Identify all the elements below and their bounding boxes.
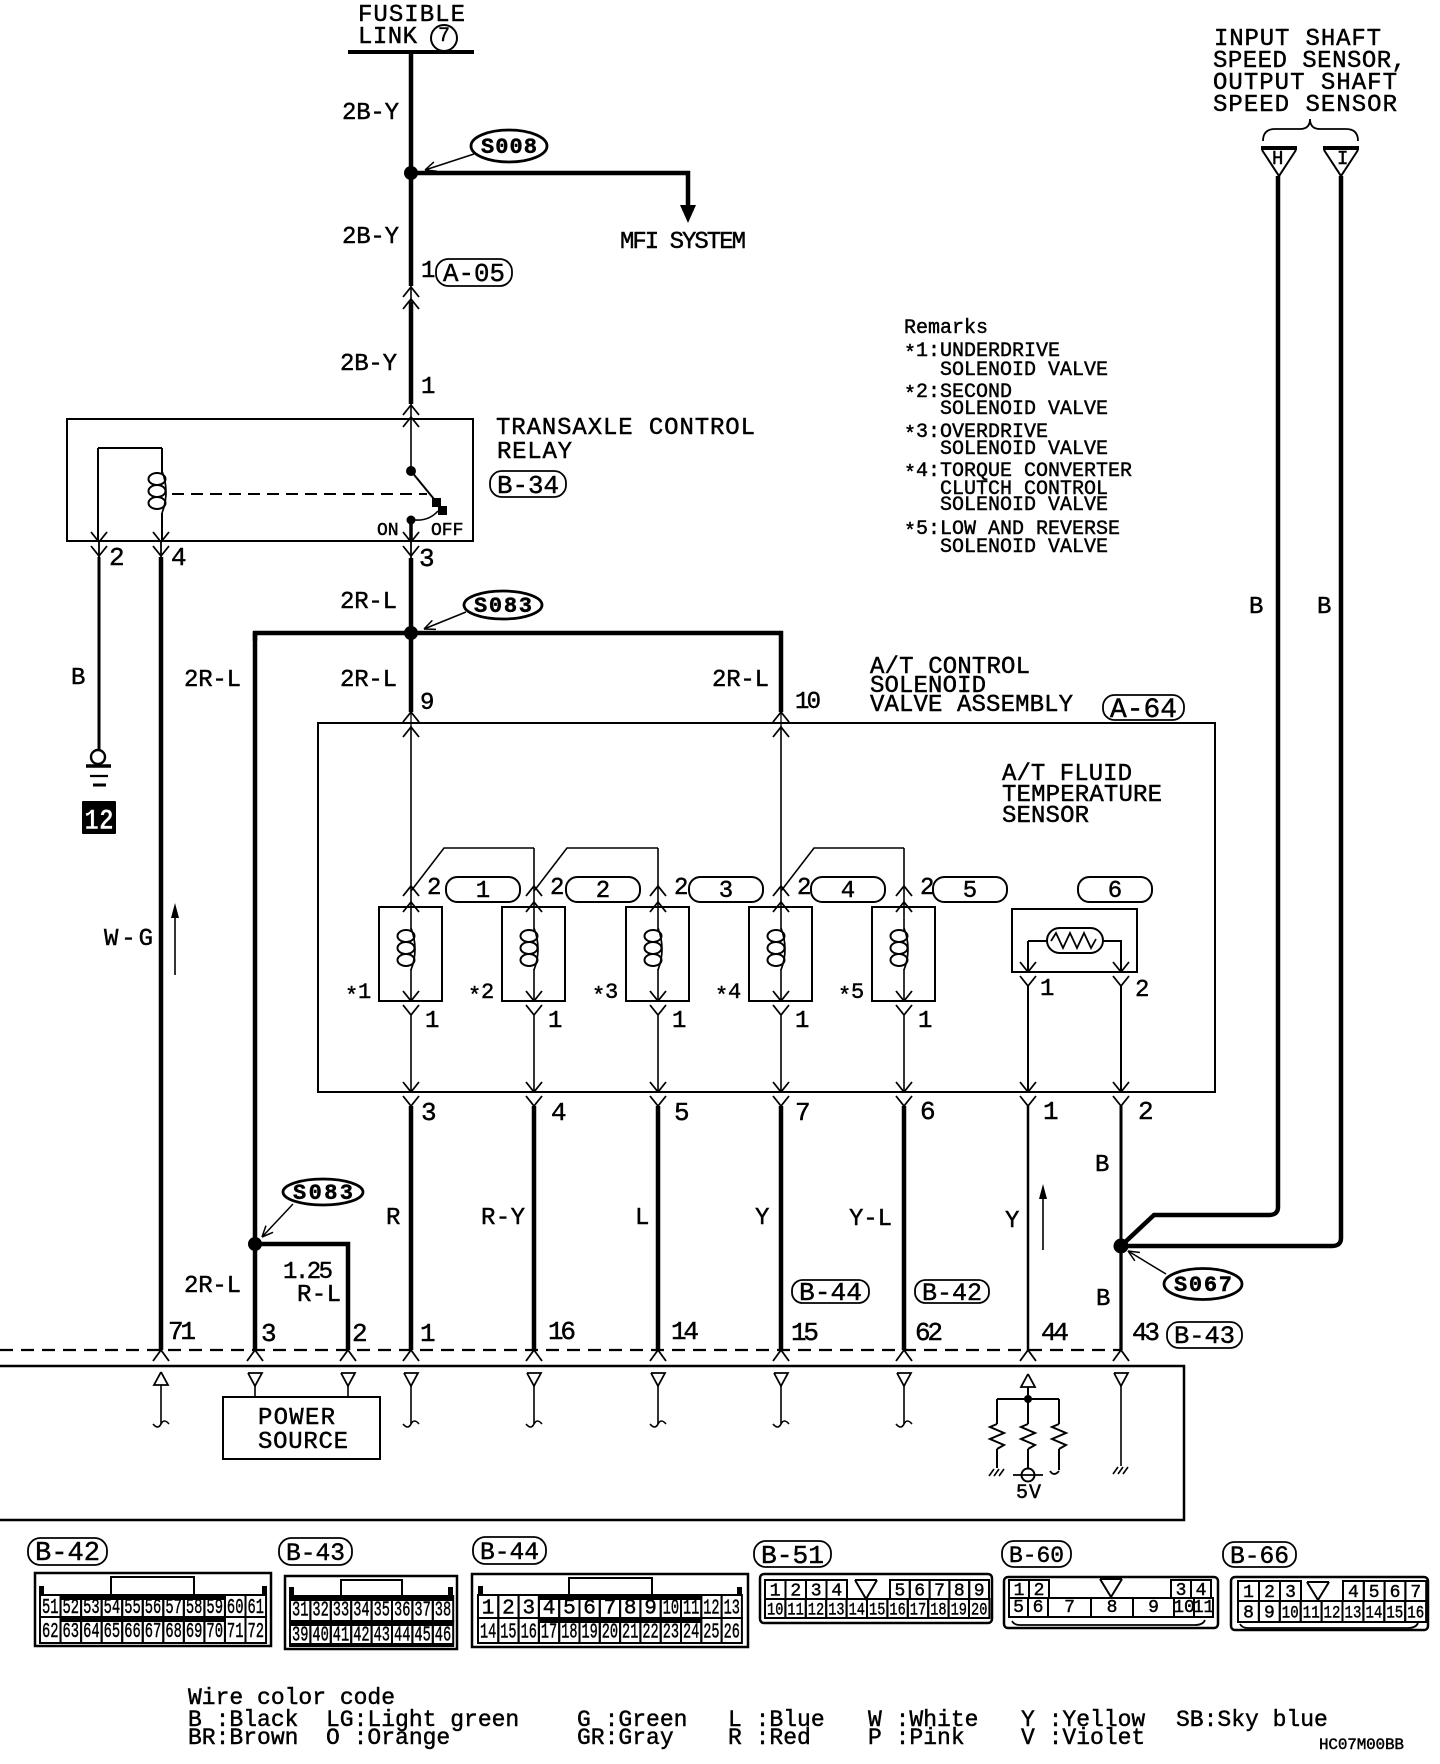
svg-text:16: 16 <box>548 1317 576 1347</box>
svg-text:B-60: B-60 <box>1009 1543 1064 1569</box>
svg-text:1: 1 <box>1040 976 1054 1003</box>
svg-text:HC07M00BB: HC07M00BB <box>1319 1736 1404 1754</box>
svg-text:B-34: B-34 <box>497 472 559 501</box>
svg-text:22: 22 <box>642 1621 658 1645</box>
svg-text:5: 5 <box>563 1597 576 1620</box>
svg-text:2: 2 <box>596 878 610 905</box>
svg-text:7: 7 <box>438 25 450 48</box>
svg-text:TRANSAXLE CONTROL: TRANSAXLE CONTROL <box>496 415 755 442</box>
svg-text:12: 12 <box>1324 1603 1341 1623</box>
svg-text:B-44: B-44 <box>799 1278 862 1308</box>
svg-text:B: B <box>1249 594 1263 621</box>
svg-text:17: 17 <box>910 1600 926 1620</box>
svg-text:B-43: B-43 <box>286 1541 345 1568</box>
svg-text:13: 13 <box>724 1597 740 1621</box>
svg-text:2R-L: 2R-L <box>184 667 241 694</box>
svg-text:2: 2 <box>109 543 125 573</box>
svg-text:I: I <box>1337 148 1348 170</box>
svg-text:11: 11 <box>1303 1603 1320 1623</box>
svg-text:LINK: LINK <box>358 24 418 51</box>
svg-text:*: * <box>904 384 916 407</box>
svg-text:GR:Gray: GR:Gray <box>577 1725 674 1751</box>
svg-text:3: 3 <box>261 1319 277 1349</box>
svg-text:8: 8 <box>1243 1603 1254 1623</box>
svg-text:44: 44 <box>1041 1318 1069 1348</box>
svg-text:3: 3 <box>1285 1583 1296 1603</box>
svg-text:6: 6 <box>583 1597 596 1620</box>
svg-text:2R-L: 2R-L <box>184 1273 241 1300</box>
svg-text:B: B <box>1096 1286 1110 1313</box>
svg-text:2: 2 <box>481 980 494 1005</box>
svg-text:1: 1 <box>421 374 435 401</box>
svg-text:5: 5 <box>1369 1583 1380 1603</box>
svg-text:19: 19 <box>951 1600 967 1620</box>
svg-text:24: 24 <box>683 1621 699 1645</box>
svg-text:35: 35 <box>374 1599 390 1623</box>
svg-text:34: 34 <box>353 1599 369 1623</box>
svg-text:12: 12 <box>703 1597 719 1621</box>
svg-text:SPEED SENSOR: SPEED SENSOR <box>1213 92 1397 119</box>
svg-text:10: 10 <box>767 1600 783 1620</box>
svg-text:SOLENOID VALVE: SOLENOID VALVE <box>940 398 1108 421</box>
svg-text:4: 4 <box>171 543 187 573</box>
svg-text:66: 66 <box>124 1620 141 1644</box>
svg-text:1: 1 <box>918 1008 932 1035</box>
svg-text:R :Red: R :Red <box>728 1725 811 1751</box>
svg-text:3: 3 <box>719 878 733 905</box>
svg-text:L: L <box>635 1205 649 1232</box>
svg-text:14: 14 <box>1365 1603 1382 1623</box>
svg-text:20: 20 <box>971 1600 987 1620</box>
svg-text:7: 7 <box>1064 1598 1075 1618</box>
svg-text:12: 12 <box>808 1600 824 1620</box>
svg-text:*: * <box>838 984 851 1009</box>
svg-text:67: 67 <box>145 1620 162 1644</box>
svg-text:69: 69 <box>186 1620 203 1644</box>
svg-text:11: 11 <box>787 1600 803 1620</box>
svg-text:36: 36 <box>394 1599 410 1623</box>
svg-text:2R-L: 2R-L <box>340 589 397 616</box>
svg-text:*: * <box>904 463 916 486</box>
svg-text:3: 3 <box>421 1098 437 1128</box>
svg-text:4: 4 <box>1348 1583 1359 1603</box>
svg-text:2: 2 <box>1264 1583 1275 1603</box>
svg-text:9: 9 <box>644 1597 657 1620</box>
svg-text:1: 1 <box>358 980 371 1005</box>
svg-text:2B-Y: 2B-Y <box>342 224 399 251</box>
svg-text:15: 15 <box>1386 1603 1403 1623</box>
svg-text:POWER: POWER <box>258 1405 335 1432</box>
svg-text:B-66: B-66 <box>1230 1544 1289 1571</box>
svg-text:2: 2 <box>797 875 811 902</box>
svg-text:9: 9 <box>420 690 434 717</box>
svg-text:4: 4 <box>551 1098 567 1128</box>
svg-text:B-43: B-43 <box>1174 1322 1235 1351</box>
svg-text:B: B <box>71 665 85 692</box>
svg-text:68: 68 <box>165 1620 182 1644</box>
svg-text:A-64: A-64 <box>1110 695 1177 726</box>
svg-text:64: 64 <box>83 1620 100 1644</box>
svg-text:3: 3 <box>605 980 618 1005</box>
svg-text:1: 1 <box>420 1319 436 1349</box>
svg-text:R-Y: R-Y <box>481 1205 525 1232</box>
svg-text:6: 6 <box>1033 1598 1044 1618</box>
svg-text:26: 26 <box>724 1621 740 1645</box>
svg-text:2: 2 <box>502 1597 515 1620</box>
svg-text:25: 25 <box>703 1621 719 1645</box>
svg-text:9: 9 <box>1264 1603 1275 1623</box>
svg-text:A-05: A-05 <box>443 260 505 289</box>
svg-text:*: * <box>904 424 916 447</box>
svg-text:1: 1 <box>548 1008 562 1035</box>
svg-text:13: 13 <box>828 1600 844 1620</box>
svg-text:Y: Y <box>755 1205 769 1232</box>
svg-text:R: R <box>386 1205 400 1232</box>
svg-text:10: 10 <box>1173 1598 1195 1618</box>
svg-text:14: 14 <box>480 1621 496 1645</box>
svg-text:9: 9 <box>1148 1598 1159 1618</box>
svg-text:5: 5 <box>674 1098 690 1128</box>
svg-text:H: H <box>1272 148 1283 170</box>
svg-text:2: 2 <box>1138 1097 1154 1127</box>
svg-text:62: 62 <box>42 1620 59 1644</box>
svg-text:*: * <box>904 343 916 366</box>
svg-text:1: 1 <box>795 1008 809 1035</box>
svg-text:SOLENOID VALVE: SOLENOID VALVE <box>940 359 1108 382</box>
svg-text:OFF: OFF <box>431 521 463 541</box>
svg-text:S008: S008 <box>481 135 537 160</box>
svg-text:SOLENOID VALVE: SOLENOID VALVE <box>940 438 1108 461</box>
svg-text:2B-Y: 2B-Y <box>342 100 399 127</box>
svg-text:RELAY: RELAY <box>497 439 572 466</box>
svg-text:S083: S083 <box>474 594 532 619</box>
svg-text:1: 1 <box>421 258 435 285</box>
svg-text:23: 23 <box>663 1621 679 1645</box>
svg-text:4: 4 <box>841 878 855 905</box>
svg-text:71: 71 <box>168 1317 196 1347</box>
svg-text:43: 43 <box>1132 1318 1160 1348</box>
svg-text:71: 71 <box>227 1620 244 1644</box>
svg-text:62: 62 <box>915 1318 943 1348</box>
svg-text:MFI SYSTEM: MFI SYSTEM <box>620 229 746 256</box>
svg-text:7: 7 <box>604 1597 617 1620</box>
svg-text:B-42: B-42 <box>35 1538 100 1569</box>
svg-text:2B-Y: 2B-Y <box>340 351 397 378</box>
svg-text:R-L: R-L <box>297 1282 341 1309</box>
svg-text:1: 1 <box>1243 1583 1254 1603</box>
svg-text:P :Pink: P :Pink <box>868 1725 965 1751</box>
svg-text:12: 12 <box>84 805 114 839</box>
svg-text:5: 5 <box>851 980 864 1005</box>
svg-text:Y: Y <box>1005 1208 1019 1235</box>
svg-text:6: 6 <box>920 1097 936 1127</box>
svg-text:*: * <box>468 984 481 1009</box>
svg-text:32: 32 <box>312 1599 328 1623</box>
svg-text:70: 70 <box>206 1620 223 1644</box>
svg-text:8: 8 <box>624 1597 637 1620</box>
svg-text:ON: ON <box>377 521 399 541</box>
svg-text:3: 3 <box>419 544 435 574</box>
svg-text:16: 16 <box>889 1600 905 1620</box>
svg-text:1: 1 <box>672 1008 686 1035</box>
svg-text:Y-L: Y-L <box>849 1206 892 1233</box>
svg-text:SOURCE: SOURCE <box>258 1429 348 1456</box>
svg-text:10: 10 <box>1282 1603 1299 1623</box>
svg-text:SOLENOID VALVE: SOLENOID VALVE <box>940 494 1108 517</box>
svg-text:17: 17 <box>541 1621 557 1645</box>
svg-text:20: 20 <box>602 1621 618 1645</box>
svg-text:BR:Brown: BR:Brown <box>188 1725 298 1751</box>
svg-text:2R-L: 2R-L <box>712 667 769 694</box>
svg-text:B-51: B-51 <box>761 1541 824 1571</box>
svg-text:33: 33 <box>333 1599 349 1623</box>
svg-text:SENSOR: SENSOR <box>1002 803 1089 830</box>
svg-text:VALVE ASSEMBLY: VALVE ASSEMBLY <box>870 692 1073 719</box>
svg-text:65: 65 <box>104 1620 121 1644</box>
svg-text:13: 13 <box>1345 1603 1362 1623</box>
svg-text:19: 19 <box>581 1621 597 1645</box>
svg-text:2: 2 <box>1135 977 1149 1004</box>
svg-text:14: 14 <box>849 1600 865 1620</box>
svg-text:1: 1 <box>1043 1097 1059 1127</box>
svg-text:72: 72 <box>248 1620 265 1644</box>
svg-text:15: 15 <box>869 1600 885 1620</box>
svg-text:7: 7 <box>1410 1583 1421 1603</box>
svg-text:2: 2 <box>352 1319 368 1349</box>
svg-text:B-44: B-44 <box>480 1540 539 1567</box>
svg-text:2R-L: 2R-L <box>340 667 397 694</box>
svg-text:2: 2 <box>550 875 564 902</box>
svg-text:5: 5 <box>1013 1598 1024 1618</box>
svg-text:14: 14 <box>671 1317 699 1347</box>
svg-text:4: 4 <box>728 980 741 1005</box>
svg-text:1: 1 <box>476 878 490 905</box>
svg-text:B: B <box>1317 594 1331 621</box>
svg-text:*: * <box>345 984 358 1009</box>
svg-text:SB:Sky blue: SB:Sky blue <box>1176 1707 1328 1733</box>
svg-text:16: 16 <box>1407 1603 1424 1623</box>
svg-text:10: 10 <box>663 1597 679 1621</box>
svg-text:15: 15 <box>500 1621 516 1645</box>
svg-text:10: 10 <box>795 689 821 716</box>
svg-text:1: 1 <box>482 1597 495 1620</box>
svg-text:8: 8 <box>1107 1598 1118 1618</box>
svg-text:5V: 5V <box>1016 1482 1041 1505</box>
svg-text:6: 6 <box>1108 878 1122 905</box>
svg-text:38: 38 <box>435 1599 451 1623</box>
svg-text:1: 1 <box>425 1008 439 1035</box>
svg-text:11: 11 <box>1193 1598 1215 1618</box>
svg-text:*: * <box>904 521 916 544</box>
svg-text:37: 37 <box>414 1599 430 1623</box>
svg-text:S067: S067 <box>1174 1273 1232 1298</box>
svg-text:*: * <box>592 984 605 1009</box>
svg-text:O :Orange: O :Orange <box>326 1725 450 1751</box>
svg-text:11: 11 <box>683 1597 699 1621</box>
svg-text:2: 2 <box>427 875 441 902</box>
svg-text:4: 4 <box>543 1597 556 1620</box>
svg-text:2: 2 <box>674 875 688 902</box>
svg-text:B: B <box>1095 1152 1109 1179</box>
svg-text:21: 21 <box>622 1621 638 1645</box>
svg-text:SOLENOID VALVE: SOLENOID VALVE <box>940 536 1108 559</box>
svg-text:15: 15 <box>791 1318 819 1348</box>
svg-text:W-G: W-G <box>104 926 153 953</box>
svg-text:Remarks: Remarks <box>904 317 988 340</box>
svg-text:V :Violet: V :Violet <box>1021 1725 1145 1751</box>
svg-text:18: 18 <box>930 1600 946 1620</box>
svg-text:63: 63 <box>63 1620 80 1644</box>
svg-text:6: 6 <box>1390 1583 1401 1603</box>
svg-text:B-42: B-42 <box>922 1279 982 1308</box>
svg-text:7: 7 <box>795 1098 811 1128</box>
svg-text:18: 18 <box>561 1621 577 1645</box>
svg-text:3: 3 <box>522 1597 535 1620</box>
svg-text:16: 16 <box>521 1621 537 1645</box>
svg-text:*: * <box>715 984 728 1009</box>
svg-text:5: 5 <box>963 878 977 905</box>
svg-text:31: 31 <box>292 1599 308 1623</box>
